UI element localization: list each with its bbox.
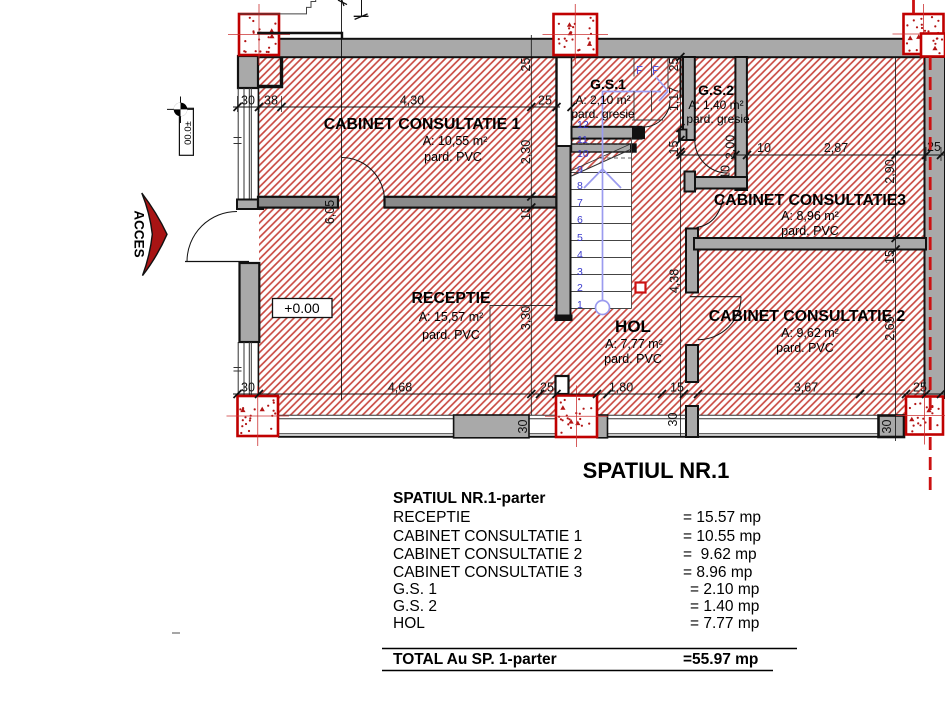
svg-text:A: 8,96 m²: A: 8,96 m² <box>781 209 839 223</box>
svg-text:= 8.96 mp: = 8.96 mp <box>683 564 752 581</box>
svg-text:= 7.77 mp: = 7.77 mp <box>690 615 759 632</box>
svg-text:+0.00: +0.00 <box>284 300 320 316</box>
svg-text:A: 2,10 m²: A: 2,10 m² <box>575 93 630 107</box>
svg-text:2,30: 2,30 <box>519 140 533 164</box>
svg-text:pard. PVC: pard. PVC <box>776 341 834 355</box>
svg-text:1,80: 1,80 <box>609 381 633 395</box>
svg-text:4,38: 4,38 <box>668 269 682 293</box>
svg-text:A: 7,77 m²: A: 7,77 m² <box>605 337 663 351</box>
svg-text:6,05: 6,05 <box>323 200 337 224</box>
svg-text:G.S. 1: G.S. 1 <box>393 581 437 598</box>
svg-text:2,87: 2,87 <box>824 141 848 155</box>
svg-text:RECEPTIE: RECEPTIE <box>412 290 491 307</box>
svg-text:ACCES: ACCES <box>132 210 147 257</box>
svg-text:10: 10 <box>577 148 589 160</box>
svg-text:3,67: 3,67 <box>794 381 818 395</box>
svg-text:10: 10 <box>519 206 533 220</box>
svg-text:SPATIUL NR.1: SPATIUL NR.1 <box>583 458 730 483</box>
svg-text:4,30: 4,30 <box>400 94 424 108</box>
svg-text:25: 25 <box>667 58 681 72</box>
svg-text:pard. gresie: pard. gresie <box>686 112 750 126</box>
svg-text:CABINET CONSULTATIE3: CABINET CONSULTATIE3 <box>714 192 906 209</box>
svg-text:00.0±: 00.0± <box>183 121 194 145</box>
svg-text:6: 6 <box>577 214 583 226</box>
svg-text:4: 4 <box>577 249 583 261</box>
svg-text:SPATIUL NR.1-parter: SPATIUL NR.1-parter <box>393 490 545 507</box>
svg-text:7: 7 <box>577 197 583 209</box>
svg-text:15: 15 <box>883 250 897 264</box>
svg-text:= 10.55 mp: = 10.55 mp <box>683 528 761 545</box>
svg-text:30: 30 <box>666 413 680 427</box>
svg-text:2,90: 2,90 <box>883 159 897 183</box>
svg-text:15: 15 <box>670 381 684 395</box>
svg-text:G.S.1: G.S.1 <box>590 76 626 92</box>
svg-text:= 9.62 mp: = 9.62 mp <box>683 546 757 563</box>
svg-text:RECEPTIE: RECEPTIE <box>393 509 471 526</box>
svg-text:25: 25 <box>913 381 927 395</box>
svg-text:3: 3 <box>577 266 583 278</box>
svg-text:A: 9,62 m²: A: 9,62 m² <box>781 326 839 340</box>
svg-text:15: 15 <box>667 141 681 155</box>
svg-text:= 15.57 mp: = 15.57 mp <box>683 509 761 526</box>
svg-text:CABINET CONSULTATIE 3: CABINET CONSULTATIE 3 <box>393 564 582 581</box>
svg-text:pard. PVC: pard. PVC <box>604 352 662 366</box>
svg-text:1: 1 <box>577 299 583 311</box>
svg-text:30: 30 <box>880 420 894 434</box>
svg-text:9: 9 <box>577 164 583 176</box>
svg-text:A: 15,57 m²: A: 15,57 m² <box>419 310 484 324</box>
svg-text:38: 38 <box>264 94 278 108</box>
svg-text:CABINET CONSULTATIE 1: CABINET CONSULTATIE 1 <box>324 116 521 133</box>
svg-text:30: 30 <box>516 420 530 434</box>
svg-text:A: 1,40 m²: A: 1,40 m² <box>688 98 743 112</box>
svg-text:G.S.2: G.S.2 <box>698 82 734 98</box>
svg-text:CABINET CONSULTATIE 2: CABINET CONSULTATIE 2 <box>393 546 582 563</box>
svg-text:pard. gresie: pard. gresie <box>571 107 635 121</box>
svg-text:A: 10,55 m²: A: 10,55 m² <box>423 134 488 148</box>
svg-text:25: 25 <box>540 381 554 395</box>
svg-text:11: 11 <box>577 134 588 146</box>
svg-text:HOL: HOL <box>615 317 651 336</box>
svg-text:pard. PVC: pard. PVC <box>781 224 839 238</box>
svg-text:pard. PVC: pard. PVC <box>424 150 482 164</box>
svg-text:HOL: HOL <box>393 615 425 632</box>
svg-text:3,30: 3,30 <box>519 306 533 330</box>
svg-text:8: 8 <box>577 180 583 192</box>
svg-text:CABINET CONSULTATIE 2: CABINET CONSULTATIE 2 <box>709 308 906 325</box>
svg-text:=55.97 mp: =55.97 mp <box>683 651 758 668</box>
svg-text:4,68: 4,68 <box>388 381 412 395</box>
svg-text:10: 10 <box>757 141 771 155</box>
svg-text:TOTAL Au SP. 1-parter: TOTAL Au SP. 1-parter <box>393 651 557 668</box>
svg-text:2,00: 2,00 <box>724 135 738 159</box>
svg-text:1,17: 1,17 <box>667 87 681 111</box>
svg-text:2: 2 <box>577 282 583 294</box>
svg-text:30: 30 <box>241 94 255 108</box>
svg-text:pard. PVC: pard. PVC <box>422 328 480 342</box>
svg-text:10: 10 <box>719 165 733 179</box>
svg-text:25: 25 <box>519 58 533 72</box>
svg-text:30: 30 <box>241 381 255 395</box>
svg-text:= 2.10 mp: = 2.10 mp <box>690 581 759 598</box>
svg-text:G.S. 2: G.S. 2 <box>393 598 437 615</box>
svg-text:CABINET CONSULTATIE 1: CABINET CONSULTATIE 1 <box>393 528 582 545</box>
svg-text:25: 25 <box>538 94 552 108</box>
svg-text:= 1.40 mp: = 1.40 mp <box>690 598 759 615</box>
svg-text:5: 5 <box>577 232 583 244</box>
